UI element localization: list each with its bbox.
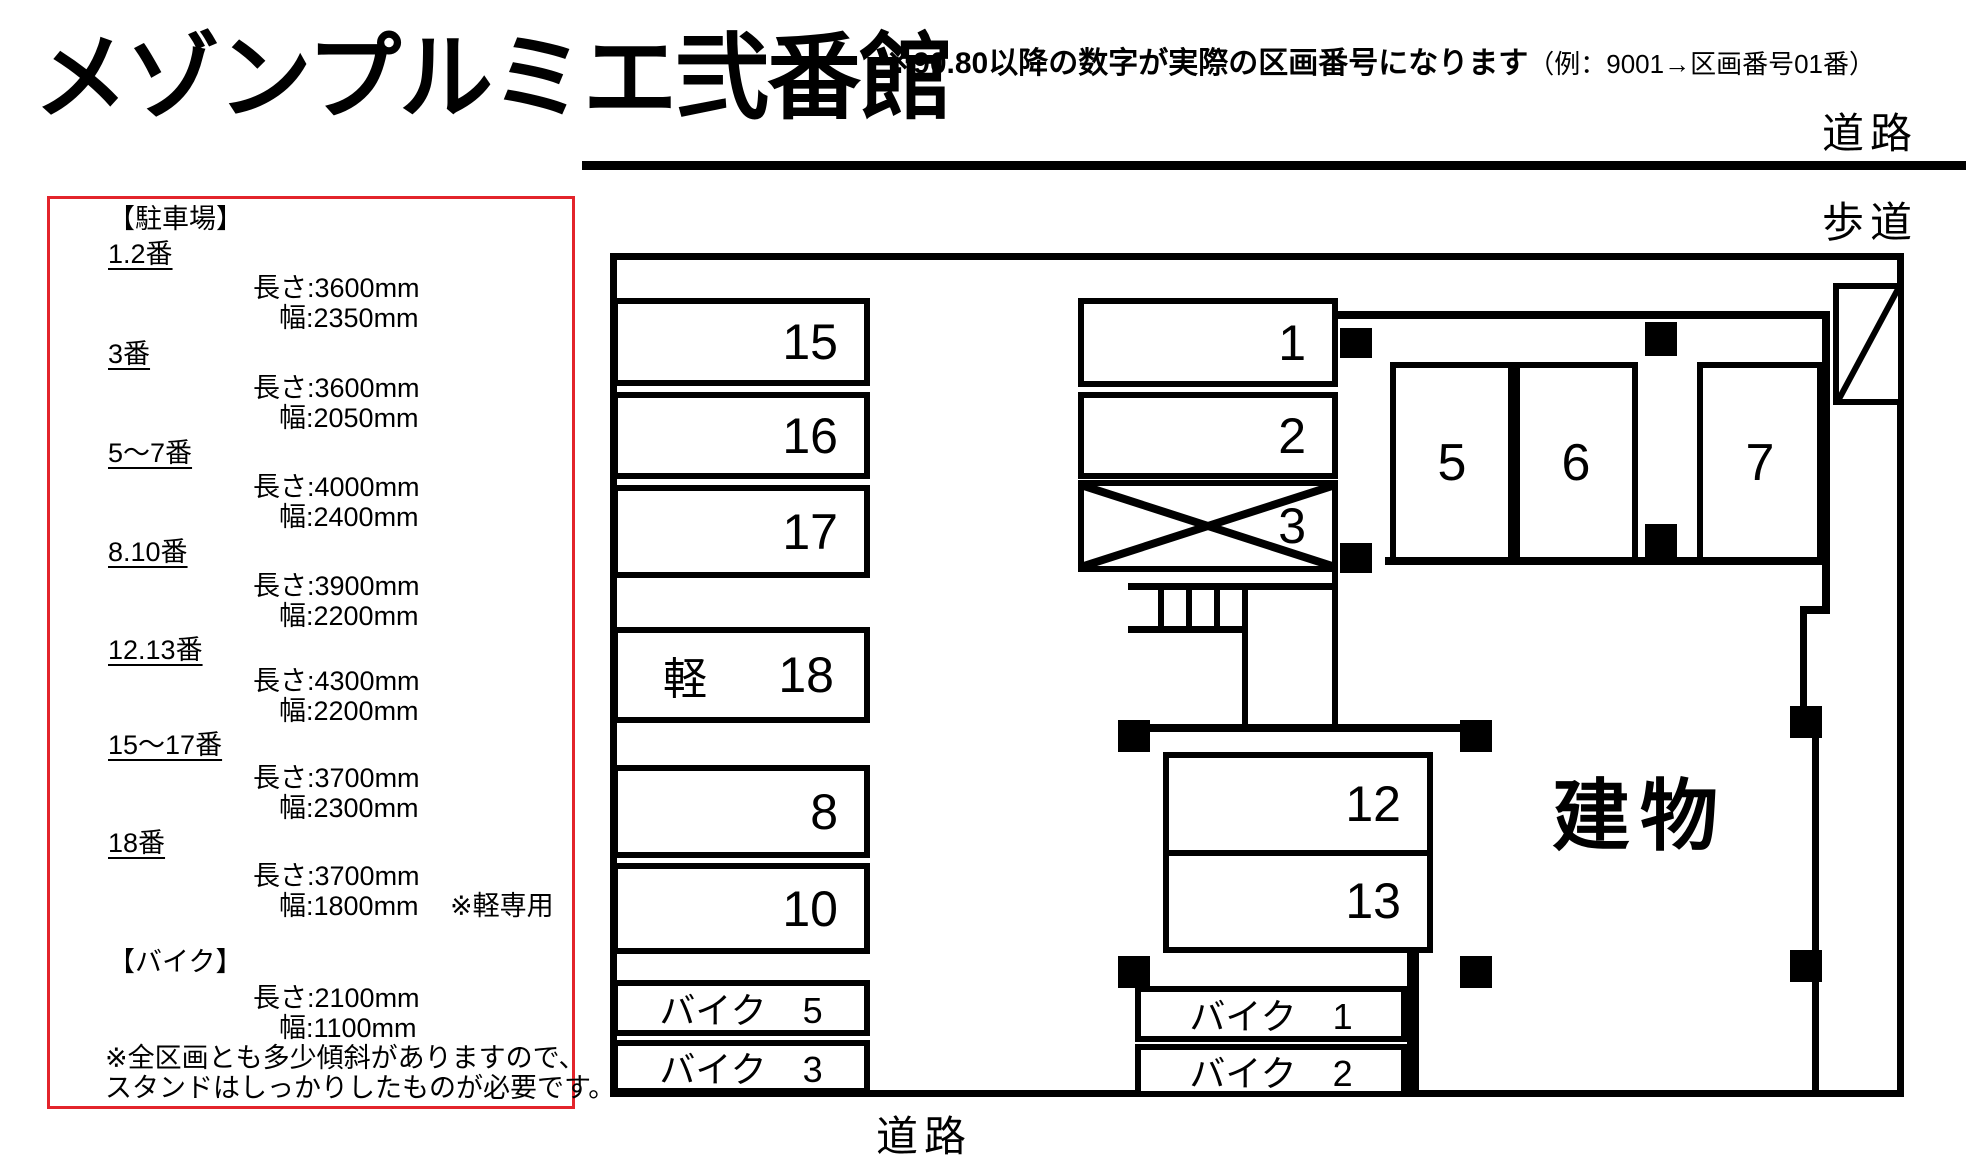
inner-wall-top <box>1338 311 1830 319</box>
inner-wall-east-lower <box>1800 606 1807 710</box>
stairs-step <box>1242 590 1248 628</box>
legend-entry-length: 長さ:3700mm <box>253 763 420 793</box>
bollard-square <box>1340 543 1372 573</box>
bollard-square <box>1645 322 1677 356</box>
legend-entry-label: 3番 <box>108 339 150 369</box>
space-label: 10 <box>782 880 838 938</box>
space-label: 7 <box>1746 433 1775 493</box>
legend-kei-note: ※軽専用 <box>450 891 554 921</box>
legend-entry-label: 1.2番 <box>108 239 173 269</box>
space-label: バイク 3 <box>659 1041 822 1093</box>
parking-space-10: 10 <box>612 863 870 954</box>
bike-space-2: バイク 2 <box>1135 1044 1407 1097</box>
legend-entry-length: 長さ:3600mm <box>253 273 420 303</box>
bollard-square <box>1118 956 1150 988</box>
legend-entry-length: 長さ:4300mm <box>253 666 420 696</box>
page-title: メゾンプルミエ弐番館 <box>34 2 951 138</box>
legend-entry-label: 15〜17番 <box>108 730 222 760</box>
bollard-square <box>1460 956 1492 988</box>
legend-bike-header: 【バイク】 <box>108 947 242 977</box>
stairs-step <box>1214 590 1220 628</box>
space-label: 15 <box>782 313 838 371</box>
parking-space-18-kei: 軽 18 <box>612 627 870 723</box>
legend-entry-label: 8.10番 <box>108 537 188 567</box>
bike-space-1: バイク 1 <box>1135 986 1407 1042</box>
parking-space-1: 1 <box>1078 298 1338 387</box>
road-edge-line <box>582 161 1966 170</box>
parking-space-6: 6 <box>1514 362 1638 564</box>
bollard-square <box>1340 328 1372 358</box>
bollard-square <box>1460 720 1492 752</box>
ramp-slope-box <box>1833 283 1904 405</box>
space-label: バイク 2 <box>1189 1045 1352 1097</box>
road-label-top: 道路 <box>1822 100 1918 161</box>
parking-space-8: 8 <box>612 765 870 858</box>
legend-entry-width: 幅:2050mm <box>279 403 419 433</box>
legend-entry-width: 幅:2400mm <box>279 502 419 532</box>
legend-parking-header: 【駐車場】 <box>108 204 243 234</box>
header-note: ※90.80以降の数字が実際の区画番号になります（例：9001→区画番号01番） <box>884 38 1875 82</box>
header-note-main: ※90.80以降の数字が実際の区画番号になります <box>884 47 1528 80</box>
parking-space-13: 13 <box>1169 856 1427 948</box>
ramp-diagonal <box>1839 289 1898 399</box>
parking-layout-page: メゾンプルミエ弐番館 ※90.80以降の数字が実際の区画番号になります（例：90… <box>0 0 1973 1168</box>
space-label: 8 <box>810 783 838 841</box>
parking-space-12: 12 <box>1169 758 1427 850</box>
stairs-side-wall <box>1242 626 1248 729</box>
space-label: 16 <box>782 407 838 465</box>
stairs-top-line <box>1128 583 1338 590</box>
legend-bike-width: 幅:1100mm <box>279 1013 417 1043</box>
legend-entry-width: 幅:2300mm <box>279 793 419 823</box>
legend-footnote-1: ※全区画とも多少傾斜がありますので、 <box>105 1043 586 1073</box>
corridor-wall <box>1332 572 1338 729</box>
space-label: 3 <box>1278 497 1306 555</box>
bollard-row-line <box>1150 724 1460 732</box>
legend-entry-width: 幅:2350mm <box>279 303 419 333</box>
parking-space-3-crossed: 3 <box>1078 480 1338 572</box>
bike-space-5: バイク 5 <box>612 980 870 1036</box>
row-bottom-line <box>1385 557 1830 565</box>
header-note-example: （例：9001→区画番号01番） <box>1528 49 1875 79</box>
legend-entry-width: 幅:2200mm <box>279 696 419 726</box>
legend-entry-length: 長さ:3700mm <box>253 861 420 891</box>
bike-space-3: バイク 3 <box>612 1040 870 1094</box>
space-label: 13 <box>1345 872 1401 930</box>
building-west-wall <box>1812 738 1819 1097</box>
space-label: 12 <box>1345 775 1401 833</box>
space-label: バイク 1 <box>1189 988 1352 1040</box>
bollard-square <box>1645 524 1677 558</box>
bike-block-east-wall <box>1407 953 1419 1097</box>
legend-entry-length: 長さ:4000mm <box>253 472 420 502</box>
parking-space-15: 15 <box>612 298 870 386</box>
parking-space-16: 16 <box>612 392 870 479</box>
stairs-mid-line <box>1128 626 1248 633</box>
space-label: 17 <box>782 503 838 561</box>
stairs-step <box>1158 590 1164 628</box>
space-label: 1 <box>1278 314 1306 372</box>
legend-entry-width: 幅:1800mm <box>279 891 419 921</box>
legend-entry-width: 幅:2200mm <box>279 601 419 631</box>
legend-entry-label: 12.13番 <box>108 635 203 665</box>
parking-space-2: 2 <box>1078 392 1338 479</box>
space-label: 2 <box>1278 407 1306 465</box>
bollard-square <box>1790 950 1822 982</box>
legend-box: 【駐車場】 1.2番 長さ:3600mm 幅:2350mm 3番 長さ:3600… <box>47 196 575 1109</box>
stairs-step <box>1186 590 1192 628</box>
bollard-square <box>1118 720 1150 752</box>
space-label: 6 <box>1562 433 1591 493</box>
bollard-square <box>1790 706 1822 738</box>
parking-space-12-13-block: 12 13 <box>1163 752 1433 953</box>
legend-entry-length: 長さ:3900mm <box>253 571 420 601</box>
parking-space-5: 5 <box>1390 362 1514 564</box>
parking-space-17: 17 <box>612 485 870 578</box>
legend-entry-label: 5〜7番 <box>108 438 192 468</box>
legend-entry-label: 18番 <box>108 828 165 858</box>
parking-space-7: 7 <box>1697 362 1823 564</box>
kei-mark: 軽 <box>663 643 707 707</box>
road-label-bottom: 道路 <box>876 1103 972 1164</box>
space-label: 5 <box>1438 433 1467 493</box>
space-label: バイク 5 <box>659 982 822 1034</box>
building-label: 建物 <box>1470 762 1810 858</box>
legend-entry-length: 長さ:3600mm <box>253 373 420 403</box>
legend-footnote-2: スタンドはしっかりしたものが必要です。 <box>105 1073 615 1103</box>
legend-bike-length: 長さ:2100mm <box>253 983 420 1013</box>
sidewalk-label: 歩道 <box>1822 189 1918 250</box>
inner-wall-east <box>1822 311 1830 613</box>
space-label: 18 <box>778 646 834 704</box>
